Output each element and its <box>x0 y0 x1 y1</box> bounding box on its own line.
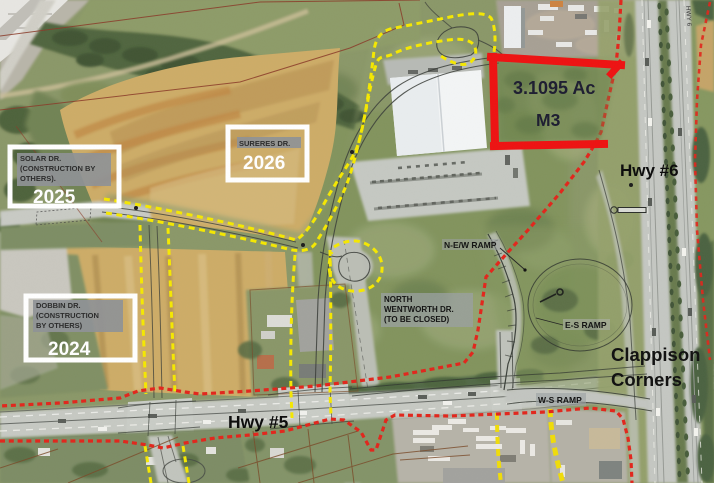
svg-text:E-S RAMP: E-S RAMP <box>565 320 607 330</box>
svg-text:W-S RAMP: W-S RAMP <box>538 395 582 405</box>
svg-text:N-E/W RAMP: N-E/W RAMP <box>444 240 497 250</box>
svg-text:2025: 2025 <box>33 187 76 208</box>
svg-text:(CONSTRUCTION BY: (CONSTRUCTION BY <box>20 164 95 173</box>
svg-text:2026: 2026 <box>243 153 285 174</box>
svg-text:HWY 6: HWY 6 <box>684 6 692 27</box>
svg-text:M3: M3 <box>536 110 561 130</box>
svg-text:Hwy #5: Hwy #5 <box>228 412 289 432</box>
svg-text:Hwy #6: Hwy #6 <box>620 161 679 180</box>
svg-text:(CONSTRUCTION: (CONSTRUCTION <box>36 311 99 320</box>
svg-text:Corners: Corners <box>611 369 682 390</box>
svg-text:WENTWORTH DR.: WENTWORTH DR. <box>384 305 454 314</box>
svg-text:(TO BE CLOSED): (TO BE CLOSED) <box>384 315 450 324</box>
svg-text:2024: 2024 <box>48 339 91 360</box>
svg-text:Clappison: Clappison <box>611 344 700 365</box>
svg-text:3.1095 Ac: 3.1095 Ac <box>513 78 595 98</box>
svg-text:NORTH: NORTH <box>384 295 413 304</box>
svg-text:SOLAR DR.: SOLAR DR. <box>20 154 61 163</box>
svg-text:OTHERS).: OTHERS). <box>20 174 56 183</box>
svg-text:BY OTHERS): BY OTHERS) <box>36 321 83 330</box>
svg-text:DOBBIN DR.: DOBBIN DR. <box>36 301 81 310</box>
svg-text:SURERES DR.: SURERES DR. <box>239 139 290 148</box>
